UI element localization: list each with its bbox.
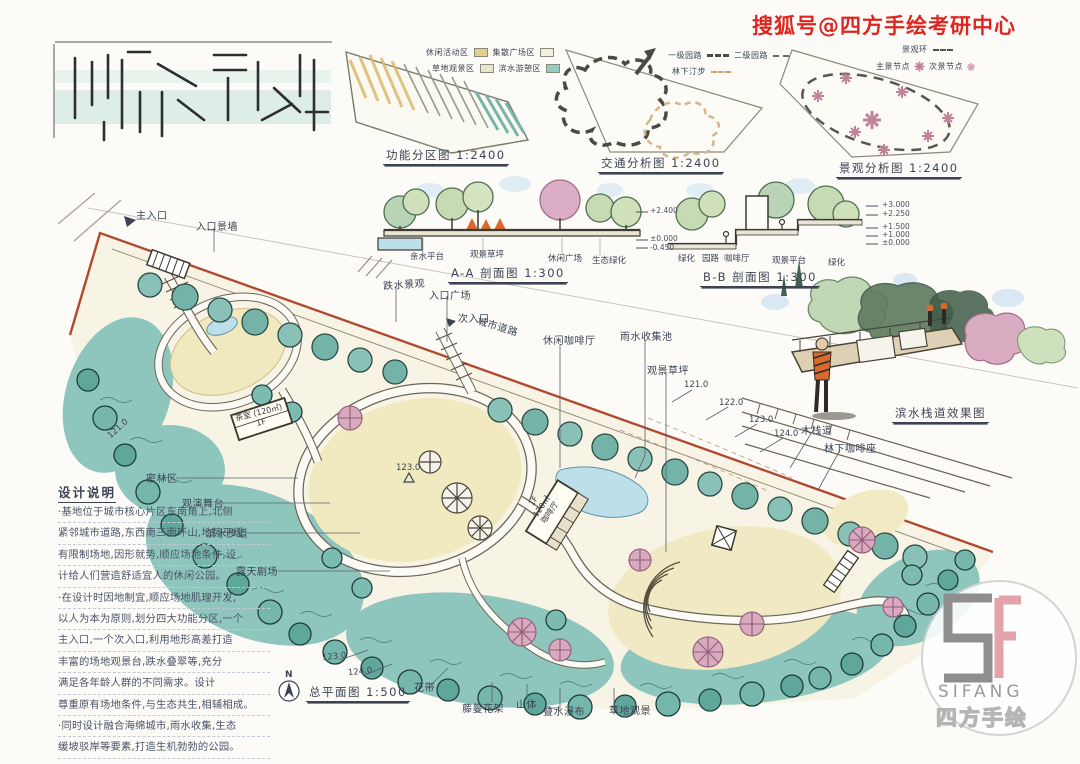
function-diagram-caption: 功能分区图 1:2400 xyxy=(383,147,509,165)
legend-label: 滨水游憩区 xyxy=(499,63,542,74)
legend-swatch-icon xyxy=(540,48,554,57)
traffic-legend-row1: 一级园路 二级园路 xyxy=(668,50,791,61)
plan-label: 藤蔓花架 xyxy=(462,700,504,715)
view-legend-row1: 景观环 xyxy=(902,44,955,55)
north-arrow xyxy=(279,681,299,701)
section-aa-label: 生态绿化 xyxy=(592,254,626,266)
legend-swatch-icon xyxy=(546,64,560,73)
notes-line: ·同时设计融合海绵城市,雨水收集,生态 xyxy=(58,716,270,737)
master-plan-caption: 总平面图 1:500 xyxy=(306,684,410,702)
plan-label: 雨水收集池 xyxy=(620,328,673,343)
legend-swatch-icon xyxy=(474,48,488,57)
legend-label: 一级园路 xyxy=(668,50,702,61)
section-bb-label: 园路 xyxy=(702,252,719,264)
legend-label: 草地观景区 xyxy=(432,63,475,74)
plan-label: 林下咖啡座 xyxy=(824,440,877,455)
notes-line: 计给人们营造舒适宜人的休闲公园。 xyxy=(58,566,270,587)
legend-label: 休闲活动区 xyxy=(426,47,469,58)
hand-drawn-landscape-design-board: 搜狐号@四方手绘考研中心 功能分区图 1:2400 休闲活动区 集散广场区 草地… xyxy=(0,0,1080,764)
plan-label: 叠水瀑布 xyxy=(543,703,585,718)
view-ring-line-icon xyxy=(933,49,953,51)
perspective-caption: 滨水栈道效果图 xyxy=(892,405,989,423)
legend-label: 二级园路 xyxy=(734,50,768,61)
stylized-title-art xyxy=(54,42,332,140)
notes-line: 有限制场地,因形就势,顺应场地条件,设 xyxy=(58,545,270,566)
section-bb-label: 咖啡厅 xyxy=(724,252,750,264)
notes-line: 满足各年龄人群的不同需求。设计 xyxy=(58,673,270,694)
traffic-diagram-caption: 交通分析图 1:2400 xyxy=(598,155,724,173)
contour-elevation: 124.0 xyxy=(774,429,798,439)
contour-elevation: 122.0 xyxy=(719,398,743,408)
major-node-star-icon xyxy=(913,60,926,73)
primary-path-line-icon xyxy=(707,54,729,57)
design-notes-title: 设计说明 xyxy=(58,482,116,503)
lawn-spot-elevation: 123.0 xyxy=(396,463,420,473)
section-bb-label: 绿化 xyxy=(678,252,695,264)
function-legend-row2: 草地观景区 滨水游憩区 xyxy=(432,63,562,74)
legend-label: 主景节点 xyxy=(876,61,910,72)
view-legend-row2: 主景节点 次景节点 xyxy=(876,60,976,73)
notes-line: ·基地位于城市核心片区东南角上,北侧 xyxy=(58,502,270,523)
section-aa-label: 观景草坪 xyxy=(470,248,504,260)
north-letter: N xyxy=(285,670,293,680)
plan-label: 山体 xyxy=(516,696,537,711)
plan-label: 草地观景 xyxy=(609,702,651,717)
elevation-mark: +2.400 xyxy=(650,206,678,215)
plan-label-main-entrance: 主入口 xyxy=(136,207,168,222)
logo-latin-text: SIFANG xyxy=(938,682,1024,702)
view-diagram-caption: 景观分析图 1:2400 xyxy=(836,160,962,178)
plan-label: 入口景墙 xyxy=(196,218,238,233)
plan-label: 入口广场 xyxy=(429,287,471,302)
section-bb-label: 绿化 xyxy=(828,256,845,268)
elevation-mark: -0.450 xyxy=(650,243,674,252)
logo-chinese-text: 四方手绘 xyxy=(936,702,1028,732)
section-aa-caption: A-A 剖面图 1:300 xyxy=(448,265,568,283)
section-aa-label: 亲水平台 xyxy=(410,250,444,262)
plan-label: 密林区 xyxy=(146,470,178,485)
notes-line: 紧邻城市道路,东西南三面环山,地势平缓 xyxy=(58,523,270,544)
legend-swatch-icon xyxy=(480,64,494,73)
woodland-step-line-icon xyxy=(711,71,731,73)
watermark-text: 搜狐号@四方手绘考研中心 xyxy=(752,10,1016,40)
traffic-legend-row2: 林下汀步 xyxy=(672,66,733,77)
section-bb-caption: B-B 剖面图 1:300 xyxy=(700,269,820,287)
contour-elevation: 123.0 xyxy=(749,415,773,425)
secondary-path-line-icon xyxy=(773,55,789,57)
plan-label: 花带 xyxy=(414,679,435,694)
elevation-mark: +3.000 xyxy=(882,200,910,209)
plan-label: 观景草坪 xyxy=(647,362,689,377)
plan-label: 休闲咖啡厅 xyxy=(543,332,596,347)
contour-elevation: 121.0 xyxy=(684,380,708,390)
legend-label: 林下汀步 xyxy=(672,66,706,77)
section-bb-art xyxy=(668,178,878,249)
section-bb-label: 观景平台 xyxy=(772,254,806,266)
legend-label: 集散广场区 xyxy=(493,47,536,58)
perspective-sketch-art xyxy=(742,260,1066,498)
traffic-diagram-art xyxy=(556,48,762,158)
minor-node-star-icon xyxy=(966,62,976,72)
notes-line: 丰富的场地观景台,跌水叠翠等,充分 xyxy=(58,652,270,673)
function-legend-row1: 休闲活动区 集散广场区 xyxy=(426,47,556,58)
notes-line: 缓坡驳岸等要素,打造生机勃勃的公园。 xyxy=(58,737,270,758)
plan-label: 木栈道 xyxy=(801,422,833,437)
legend-label: 景观环 xyxy=(902,44,928,55)
elevation-mark: ±0.000 xyxy=(650,234,678,243)
elevation-mark: +2.250 xyxy=(882,209,910,218)
legend-label: 次景节点 xyxy=(929,61,963,72)
plan-label: 跌水景观 xyxy=(383,275,426,293)
notes-line: 尊重原有场地条件,与生态共生,相辅相成。 xyxy=(58,695,270,716)
design-notes-body: ·基地位于城市核心片区东南角上,北侧 紧邻城市道路,东西南三面环山,地势平缓 有… xyxy=(58,502,270,759)
elevation-mark: ±0.000 xyxy=(882,238,910,247)
notes-line: ·在设计时因地制宜,顺应场地肌理开发, xyxy=(58,588,270,609)
notes-line: 主入口,一个次入口,利用地形高差打造 xyxy=(58,630,270,651)
notes-line: 以人为本为原则,划分四大功能分区,一个 xyxy=(58,609,270,630)
section-aa-label: 休闲广场 xyxy=(548,252,582,264)
